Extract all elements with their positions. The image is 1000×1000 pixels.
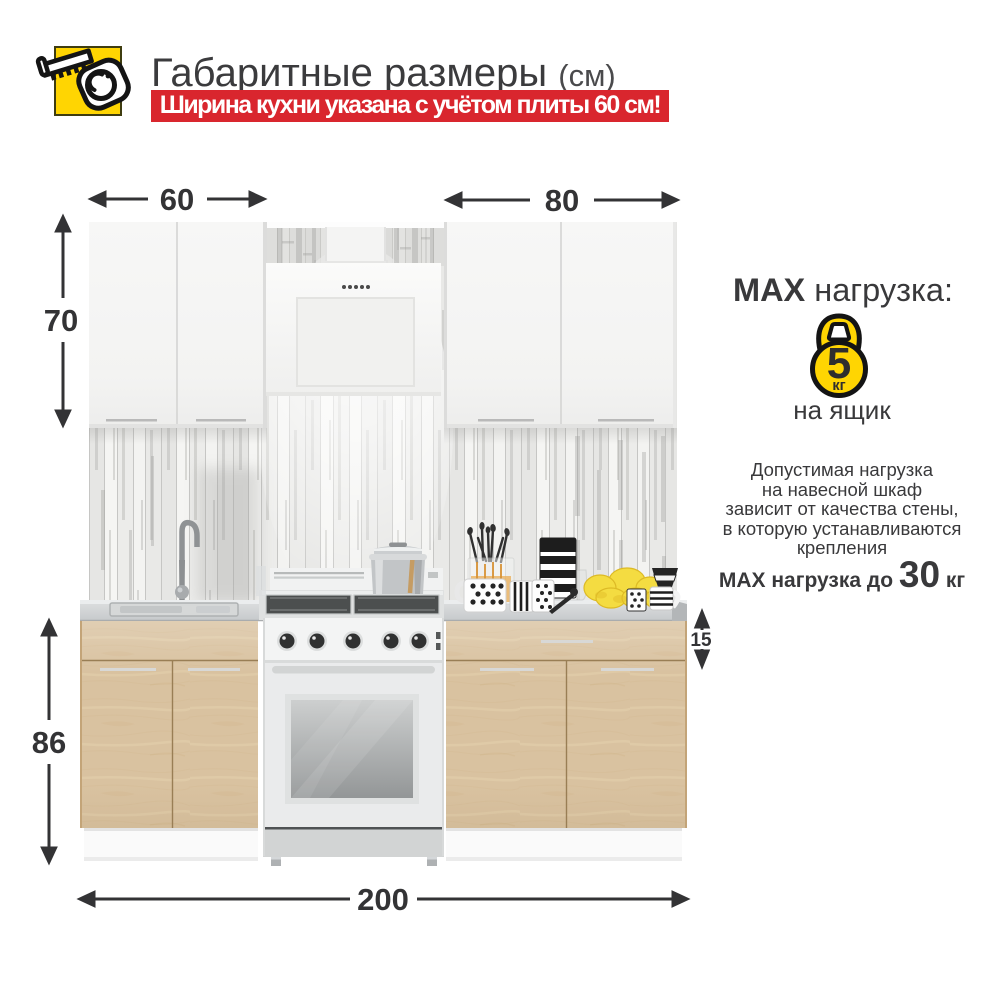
svg-text:200: 200 <box>357 882 409 917</box>
svg-text:кг: кг <box>832 378 845 394</box>
svg-text:86: 86 <box>32 725 66 760</box>
svg-text:60: 60 <box>160 182 194 217</box>
svg-text:80: 80 <box>545 183 579 218</box>
svg-text:15: 15 <box>690 630 712 651</box>
svg-text:70: 70 <box>44 303 78 338</box>
